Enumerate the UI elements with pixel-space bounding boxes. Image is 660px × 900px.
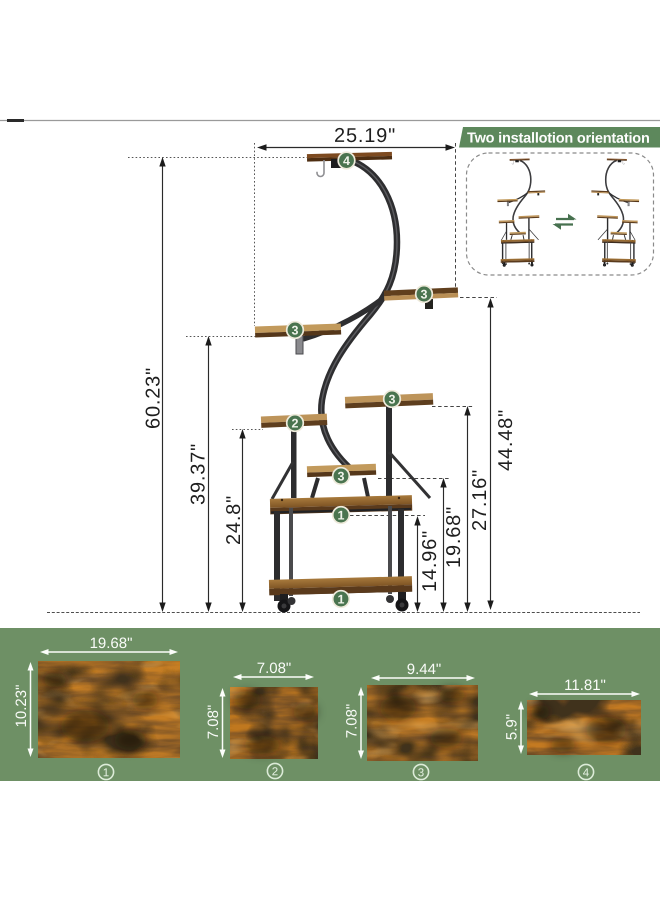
svg-text:2: 2 xyxy=(291,416,298,430)
svg-text:7.08": 7.08" xyxy=(344,704,361,739)
svg-text:19.68": 19.68" xyxy=(90,635,133,652)
svg-text:27.16": 27.16" xyxy=(469,469,491,531)
svg-text:3: 3 xyxy=(418,767,424,779)
svg-text:25.19": 25.19" xyxy=(334,125,396,147)
svg-text:1: 1 xyxy=(103,767,109,779)
svg-text:Two installotion orientation: Two installotion orientation xyxy=(467,131,650,147)
svg-text:11.81": 11.81" xyxy=(564,677,606,694)
svg-text:3: 3 xyxy=(388,392,395,406)
svg-text:1: 1 xyxy=(337,508,344,522)
svg-text:3: 3 xyxy=(291,323,298,337)
svg-text:9.44": 9.44" xyxy=(407,661,442,678)
svg-text:7.08": 7.08" xyxy=(257,660,292,677)
svg-text:14.96": 14.96" xyxy=(419,530,441,592)
svg-text:24.8": 24.8" xyxy=(223,495,245,545)
svg-text:60.23": 60.23" xyxy=(143,367,165,429)
svg-text:39.37": 39.37" xyxy=(188,443,210,505)
svg-text:3: 3 xyxy=(337,469,344,483)
svg-text:4: 4 xyxy=(583,767,590,779)
svg-text:1: 1 xyxy=(337,592,344,606)
svg-text:19.68": 19.68" xyxy=(443,506,465,568)
svg-text:4: 4 xyxy=(343,154,350,168)
svg-text:5.9": 5.9" xyxy=(504,714,521,740)
svg-text:2: 2 xyxy=(272,766,278,778)
svg-text:10.23": 10.23" xyxy=(13,685,30,728)
svg-text:3: 3 xyxy=(420,287,427,301)
svg-text:44.48": 44.48" xyxy=(495,409,517,471)
svg-text:7.08": 7.08" xyxy=(205,705,222,740)
